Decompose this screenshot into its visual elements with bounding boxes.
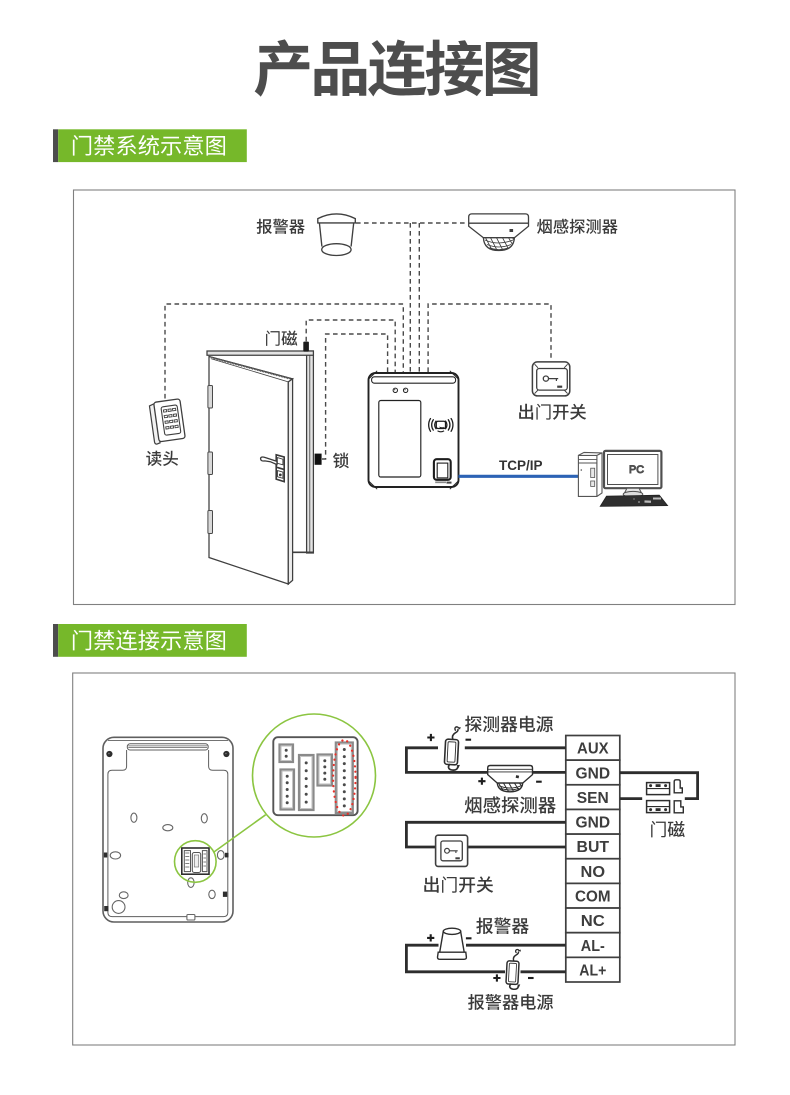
- svg-text:GND: GND: [576, 815, 611, 832]
- svg-text:BUT: BUT: [577, 839, 610, 856]
- svg-text:AL+: AL+: [579, 962, 606, 979]
- svg-text:AUX: AUX: [577, 741, 609, 758]
- svg-text:SEN: SEN: [577, 790, 609, 807]
- svg-text:COM: COM: [575, 889, 611, 906]
- svg-text:AL-: AL-: [581, 938, 605, 955]
- svg-text:TCP/IP: TCP/IP: [499, 458, 543, 473]
- svg-text:NO: NO: [581, 864, 606, 881]
- svg-text:NC: NC: [581, 913, 605, 930]
- svg-text:PC: PC: [629, 464, 644, 476]
- svg-text:GND: GND: [576, 765, 611, 782]
